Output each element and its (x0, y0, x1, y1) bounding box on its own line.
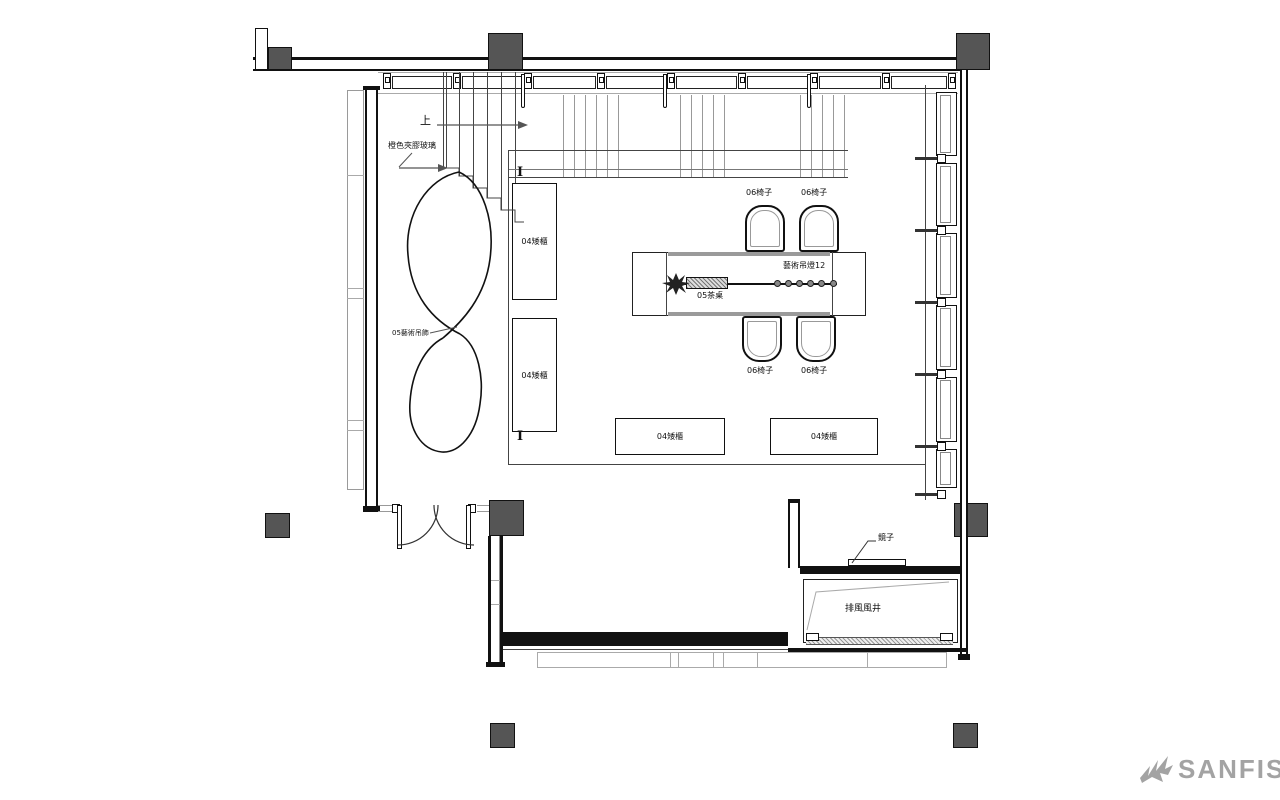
mirror (848, 559, 906, 566)
chair-top-left (745, 205, 785, 252)
window-joint-pin (915, 157, 937, 160)
top-left-column (268, 47, 292, 70)
window-joint-square (937, 154, 946, 163)
door-leaf-right (466, 505, 471, 549)
shell-divider (347, 288, 364, 289)
right-window-panel (936, 377, 957, 442)
window-joint-square (937, 226, 946, 235)
storefront-bottom-line (378, 93, 958, 94)
stair-line (459, 72, 460, 176)
hanging-art-leader (430, 327, 457, 333)
low-cabinet-2-label: 04矮櫃 (811, 432, 837, 441)
hanging-art-label: 05藝術吊飾 (392, 329, 429, 337)
top-middle-column (488, 33, 523, 70)
storefront-panel (819, 76, 881, 89)
floor-divider (678, 652, 679, 667)
pendant-light (774, 280, 781, 287)
tall-cabinet-1-label: 04矮櫃 (521, 237, 547, 246)
tea-table-edge-top (668, 252, 830, 256)
top-left-white-column (255, 28, 268, 70)
exhaust-shaft-label: 排風風井 (845, 604, 881, 614)
mullion-post (948, 73, 956, 89)
mullion-post (597, 73, 605, 89)
chair-top-right (799, 205, 839, 252)
tall-cabinet-2-label: 04矮櫃 (521, 371, 547, 380)
stairs-up-label: 上 (420, 115, 431, 127)
hanger-pin (521, 74, 525, 108)
tea-tray (686, 277, 728, 289)
mullion-post (738, 73, 746, 89)
window-joint-pin (915, 301, 937, 304)
bottom-wall (503, 632, 788, 646)
inner-room-bottom-line (508, 464, 926, 465)
pendant-light (785, 280, 792, 287)
hanging-rail-group (800, 95, 846, 178)
hanging-rail-group (680, 95, 735, 178)
low-cabinet-1-label: 04矮櫃 (657, 432, 683, 441)
window-joint-square (937, 298, 946, 307)
window-joint-square (937, 370, 946, 379)
storefront-panel (533, 76, 596, 89)
stair-line (501, 72, 502, 210)
stair-line (446, 72, 447, 168)
tall-cabinet-2: 04矮櫃 (512, 318, 557, 432)
corridor-tick (491, 604, 500, 605)
watermark-logo: SANFISH (1138, 752, 1280, 786)
low-cabinet-2: 04矮櫃 (770, 418, 878, 455)
tall-cabinet-1: 04矮櫃 (512, 183, 557, 300)
chair-label: 06椅子 (801, 366, 827, 375)
window-joint-pin (915, 445, 937, 448)
detached-column-left (265, 513, 290, 538)
door-leaf-left (397, 505, 402, 549)
top-beam-wall (253, 57, 962, 71)
glass-note-leader (399, 153, 412, 167)
grille-bracket-left (806, 633, 819, 641)
left-exterior-wall (365, 88, 378, 512)
door-swing-arc-left (398, 505, 438, 545)
low-cabinet-1: 04矮櫃 (615, 418, 725, 455)
storefront-panel (606, 76, 666, 89)
right-window-panel (936, 163, 957, 226)
glass-note-label: 橙色夾膠玻璃 (388, 141, 436, 150)
corridor-wall-cap (486, 662, 505, 667)
stair-line (473, 72, 474, 188)
mullion-post (882, 73, 890, 89)
pendant-light (796, 280, 803, 287)
detached-column-bottom-left (490, 723, 515, 748)
detached-column-bottom-right (953, 723, 978, 748)
pendant-light (818, 280, 825, 287)
door-stub-left (378, 505, 393, 512)
hanging-art-sculpture (408, 172, 492, 452)
track-band-bottom (508, 177, 848, 178)
right-window-panel (936, 92, 957, 156)
top-right-column (956, 33, 990, 70)
section-marker-top: I (517, 166, 523, 179)
pendant-light (830, 280, 837, 287)
tea-table-inner-line-left (666, 252, 667, 316)
hanger-pin (663, 74, 667, 108)
left-wall-top-cap (363, 86, 380, 90)
mullion-post (383, 73, 391, 89)
floor-plan-canvas: 04矮櫃 04矮櫃 I I 藝術吊燈12 05茶桌 06椅子 06椅子 06椅子… (0, 0, 1280, 800)
entry-column (489, 500, 524, 536)
storefront-panel (891, 76, 947, 89)
right-window-panel (936, 233, 957, 298)
right-window-panel (936, 305, 957, 370)
right-exterior-wall (960, 70, 968, 656)
floor-outline (537, 667, 947, 668)
shell-divider (347, 298, 364, 299)
pendant-light (807, 280, 814, 287)
window-joint-pin (915, 229, 937, 232)
corridor-tick (491, 580, 500, 581)
floor-divider (670, 652, 671, 667)
floor-divider (757, 652, 758, 667)
hanging-rail-group (563, 95, 626, 178)
floor-divider (537, 652, 538, 667)
storefront-panel (462, 76, 523, 89)
chair-label: 06椅子 (746, 188, 772, 197)
inner-room-left-line (508, 150, 509, 465)
shell-divider (347, 430, 364, 431)
window-joint-square (937, 442, 946, 451)
tea-table-label: 05茶桌 (697, 291, 723, 300)
mullion-post (810, 73, 818, 89)
chair-label: 06椅子 (747, 366, 773, 375)
door-stub-right (477, 505, 489, 512)
right-wall-bottom-cap (958, 654, 970, 660)
floor-divider (723, 652, 724, 667)
inner-room-right-line (925, 85, 926, 500)
stair-line (443, 72, 444, 168)
floor-divider (867, 652, 868, 667)
bottom-wall-edge (503, 649, 788, 650)
fish-icon (1138, 752, 1174, 786)
mullion-post (667, 73, 675, 89)
watermark-brand-text: SANFISH (1178, 754, 1280, 785)
chair-label: 06椅子 (801, 188, 827, 197)
track-band-middle (508, 169, 848, 170)
corridor-inner-line (499, 536, 500, 664)
floor-divider (713, 652, 714, 667)
up-arrow-head (518, 121, 528, 129)
section-marker-bottom: I (517, 430, 523, 443)
exhaust-room-wall-cap (788, 499, 800, 503)
shell-divider (347, 175, 364, 176)
exhaust-grille (806, 637, 953, 645)
storefront-panel (676, 76, 737, 89)
mullion-post (524, 73, 532, 89)
window-joint-square (937, 490, 946, 499)
floor-divider (946, 652, 947, 667)
pendant-lights-note: 藝術吊燈12 (783, 261, 825, 270)
grille-bracket-right (940, 633, 953, 641)
storefront-panel (747, 76, 809, 89)
shell-divider (347, 420, 364, 421)
corridor-wall (488, 536, 503, 664)
stair-line (487, 72, 488, 198)
chair-bottom-left (742, 316, 782, 362)
mirror-label: 鏡子 (878, 533, 894, 542)
window-joint-pin (915, 373, 937, 376)
window-joint-pin (915, 493, 937, 496)
exhaust-room-left-wall (788, 502, 800, 568)
track-band-top (508, 150, 848, 151)
floor-outline (537, 652, 947, 653)
mirror-wall (800, 566, 960, 574)
right-window-panel (936, 449, 957, 488)
chair-bottom-right (796, 316, 836, 362)
